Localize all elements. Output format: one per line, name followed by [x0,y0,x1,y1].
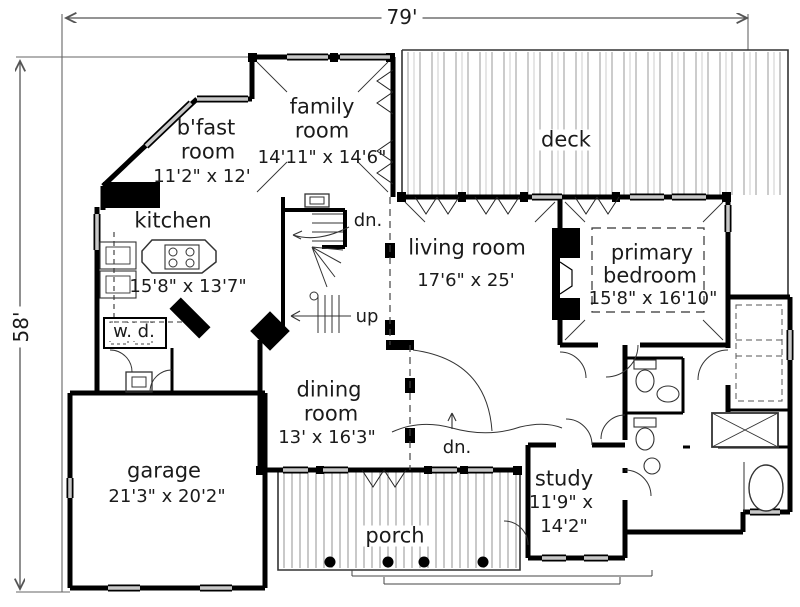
room-label-porch: porch [360,526,429,547]
room-size-family: 14'11" x 14'6" [258,149,387,167]
room-label-primary-2: bedroom [603,266,697,287]
room-label-dining: dining [297,380,362,401]
corner-cabinets [169,297,289,350]
fireplace [552,228,580,320]
room-label-bfast-2: room [181,142,235,163]
bathtub [749,465,783,511]
room-label-family-2: room [295,121,349,142]
stairs-down-label: dn. [354,212,383,230]
room-size-kitchen: 15'8" x 13'7" [129,278,246,296]
pedestal-sink [644,458,660,474]
room-label-living: living room [408,238,526,259]
room-size-living: 17'6" x 25' [417,272,515,290]
floor-plan: 79' 58' family room 14'11" x 14'6" b'fas… [0,0,800,607]
step-down-arrow [448,413,456,429]
hall-bench [126,372,152,392]
door-arcs [110,345,728,545]
room-label-laundry: w. d. [108,323,160,341]
porch-steps [352,570,652,584]
chimney-block [103,182,160,208]
closet-shelving [736,305,782,401]
room-label-study: study [535,469,593,490]
porch-down-label: dn. [443,439,472,457]
sink-oval [657,386,679,402]
dimension-height-label: 58' [11,307,31,348]
room-label-family: family [290,97,355,118]
porch-area [278,470,652,584]
room-label-garage: garage [127,461,201,482]
room-size-primary: 15'8" x 16'10" [589,290,718,308]
dimension-width-label: 79' [382,7,423,27]
room-size-study: 11'9" x [529,494,593,512]
room-size-study-2: 14'2" [540,518,588,536]
toilet-tank [634,360,656,369]
room-label-bfast: b'fast [177,118,236,139]
stairs [283,194,351,335]
wall-oven [100,242,136,269]
porch-columns [325,557,489,568]
stairs-up-label: up [356,308,379,326]
room-size-garage: 21'3" x 20'2" [108,488,225,506]
toilet-bowl [636,370,654,392]
room-size-bfast: 11'2" x 12' [153,168,251,186]
room-label-dining-2: room [304,404,358,425]
room-size-dining: 13' x 16'3" [278,429,376,447]
bath-fixtures [634,360,783,512]
room-label-kitchen: kitchen [134,211,211,232]
room-label-primary: primary [611,243,693,264]
room-label-deck: deck [536,130,596,151]
